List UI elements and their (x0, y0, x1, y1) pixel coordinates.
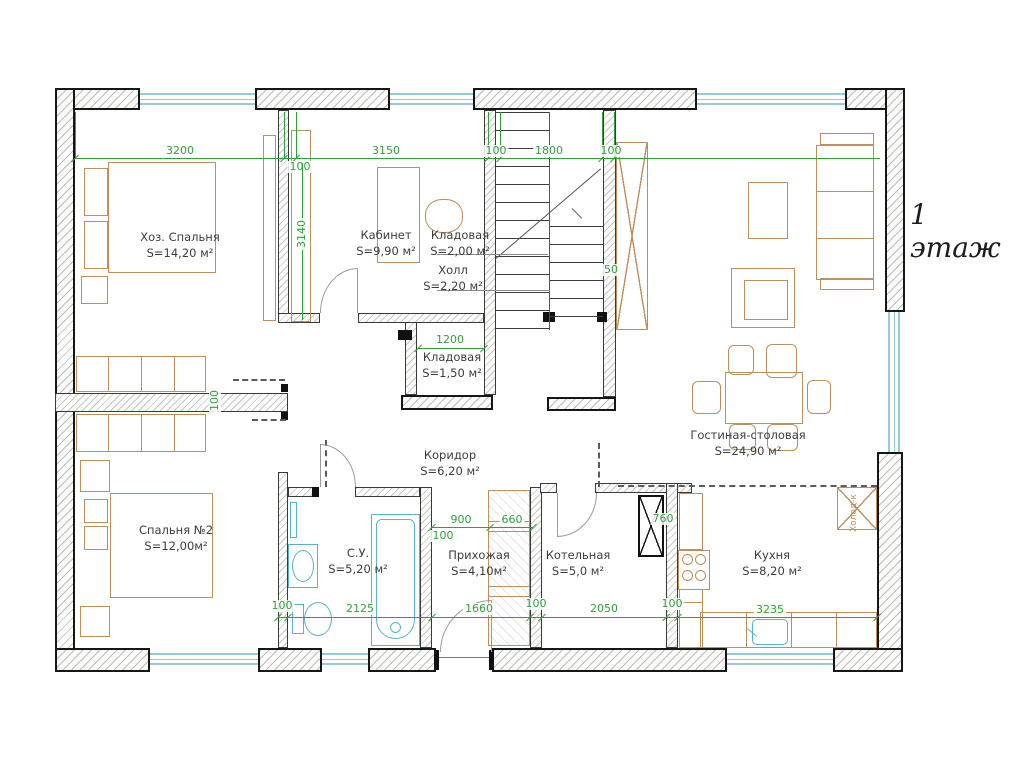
dim-label: 3235 (754, 604, 786, 616)
dim-label: 100 (524, 598, 549, 610)
nightstand (81, 276, 108, 304)
wall-bathroom-top-b (355, 487, 420, 497)
door-jamb (398, 330, 412, 340)
dining-table (725, 372, 803, 424)
outer-wall-top-3 (473, 88, 697, 110)
entry-door-jamb (434, 650, 439, 670)
dim-label: 3200 (164, 145, 196, 157)
dim-label: 100 (288, 161, 313, 173)
window-top-3 (697, 93, 845, 105)
room-name: Котельная (534, 548, 622, 564)
window-right (888, 312, 900, 452)
room-area: S=1,50 м² (412, 366, 492, 382)
room-label-hall: Холл S=2,20 м² (418, 263, 488, 294)
room-label-master-bedroom: Хоз. Спальня S=14,20 м² (115, 230, 245, 261)
outer-wall-bottom-3 (368, 648, 436, 672)
room-name: Кладовая (418, 228, 502, 244)
pillow (84, 526, 108, 550)
room-name: Кухня (722, 548, 822, 564)
outer-wall-top-2 (255, 88, 390, 110)
door-leaf-office (357, 268, 358, 313)
entry-door-jamb (489, 650, 494, 670)
dim-label: 100 (484, 145, 509, 157)
door-arc-office (320, 268, 358, 313)
room-label-bathroom: С.У. S=5,20 м² (326, 546, 390, 577)
room-name: Гостиная-столовая (668, 428, 828, 444)
room-area: S=5,0 м² (534, 564, 622, 580)
dining-chair (728, 345, 754, 375)
room-name: Холл (418, 263, 488, 279)
window-bottom-bathroom (322, 653, 368, 665)
wall-bathroom-left (278, 472, 288, 648)
pillow (84, 499, 108, 523)
room-label-bedroom2: Спальня №2 S=12,00м² (115, 523, 237, 554)
dresser-bedroom2 (76, 414, 206, 452)
dining-chair (766, 344, 797, 378)
nightstand (80, 606, 110, 637)
sliding-door-dashed (252, 419, 286, 421)
outer-wall-bottom-1 (55, 648, 150, 672)
dim-line-top (75, 158, 880, 159)
outer-wall-bottom-2 (258, 648, 322, 672)
sink-bowl (292, 550, 314, 582)
door-leaf-bathroom (320, 444, 321, 487)
wall-office-south-b (358, 313, 484, 323)
room-name: Прихожая (438, 548, 520, 564)
dim-label: 100 (660, 598, 685, 610)
armchair-seat (744, 280, 788, 320)
nightstand (80, 460, 110, 492)
wall-boiler-kitchen (666, 483, 678, 648)
dining-chair (692, 381, 721, 414)
outer-wall-right-upper (885, 88, 905, 312)
room-name: Хоз. Спальня (115, 230, 245, 246)
pillow (84, 168, 108, 216)
floor-title: 1 этаж (910, 198, 1024, 264)
room-label-living: Гостиная-столовая S=24,90 м² (668, 428, 828, 459)
room-name: Спальня №2 (115, 523, 237, 539)
outer-wall-right-lower (877, 452, 903, 672)
sofa-pad (820, 278, 874, 290)
window-bottom-bedroom2 (150, 653, 258, 665)
sofa (816, 145, 874, 280)
room-name: С.У. (326, 546, 390, 562)
window-bottom-kitchen (727, 653, 833, 665)
pillow (84, 221, 108, 269)
dim-ext (284, 112, 285, 158)
vent-shaft (638, 495, 664, 557)
wall-pantry-bottom (401, 395, 493, 410)
room-area: S=12,00м² (115, 539, 237, 555)
bathtub-inner (376, 519, 415, 639)
stairs-flight-down (549, 226, 603, 330)
stove-burner (682, 554, 693, 565)
opening-dashed (598, 443, 600, 487)
bathtub-drain (390, 622, 401, 633)
stove-burner (695, 570, 706, 581)
room-area: S=6,20 м² (405, 464, 495, 480)
sofa-pad (820, 133, 874, 145)
dim-line-hall (432, 527, 533, 528)
dim-label: 50 (602, 264, 620, 276)
dim-label: 2125 (344, 603, 376, 615)
sliding-door-dashed (233, 379, 285, 381)
dim-label: 760 (651, 513, 676, 525)
room-label-pantry2: Кладовая S=2,00 м² (418, 228, 502, 259)
wall-boiler-top-a (540, 483, 557, 493)
dim-ext (75, 112, 76, 158)
door-arc-bathroom (320, 444, 356, 487)
dim-label: 1660 (463, 603, 495, 615)
dim-line-bottom (278, 617, 877, 618)
room-label-kitchen: Кухня S=8,20 м² (722, 548, 822, 579)
room-area: S=5,20 м² (326, 562, 390, 578)
entry-threshold (439, 657, 489, 658)
room-area: S=14,20 м² (115, 246, 245, 262)
dim-ext (296, 112, 297, 158)
dim-label: 660 (500, 514, 525, 526)
dim-label: 3140 (296, 218, 308, 250)
dim-label: 1200 (434, 334, 466, 346)
wardrobe-hall (616, 142, 648, 330)
refrigerator-label: Холод-к (849, 486, 859, 532)
dim-label: 3150 (370, 145, 402, 157)
room-area: S=4,10м² (438, 564, 520, 580)
outer-wall-left (55, 88, 75, 672)
door-leaf-boiler (557, 493, 558, 537)
stove-burner (695, 554, 706, 565)
room-label-corridor: Коридор S=6,20 м² (405, 448, 495, 479)
room-label-pantry1: Кладовая S=1,50 м² (412, 350, 492, 381)
room-area: S=2,00 м² (418, 244, 502, 260)
window-top-2 (390, 93, 473, 105)
door-jamb (312, 487, 319, 497)
wall-bathroom-right (420, 487, 432, 648)
stairs-direction-tick (572, 208, 583, 219)
wall-hall-stub (547, 397, 616, 411)
stove-burner (682, 570, 693, 581)
outer-wall-bottom-4 (492, 648, 727, 672)
room-name: Коридор (405, 448, 495, 464)
kitchen-sink (752, 619, 788, 645)
coffee-table (748, 182, 788, 239)
room-area: S=2,20 м² (418, 279, 488, 295)
dim-label: 100 (599, 145, 624, 157)
closet-strip (263, 135, 276, 321)
dim-label: 1800 (533, 145, 565, 157)
door-jamb (281, 384, 288, 392)
dining-chair (807, 380, 831, 414)
toilet-bowl (304, 602, 332, 636)
room-area: S=24,90 м² (668, 444, 828, 460)
room-name: Кладовая (412, 350, 492, 366)
floor-plan: Холод-к 3200 100 3150 100 1800 100 3140 … (0, 0, 1024, 768)
dresser-master (76, 356, 206, 392)
door-arc-boiler (557, 493, 597, 537)
outer-wall-bottom-5 (833, 648, 903, 672)
dim-label: 900 (449, 514, 474, 526)
wall-between-bedrooms (55, 393, 288, 412)
room-area: S=8,20 м² (722, 564, 822, 580)
dim-label: 100 (209, 388, 221, 413)
room-label-entry: Прихожая S=4,10м² (438, 548, 520, 579)
dim-label: 2050 (588, 603, 620, 615)
dim-label: 100 (431, 530, 456, 542)
dim-label: 100 (270, 600, 295, 612)
room-label-boiler: Котельная S=5,0 м² (534, 548, 622, 579)
window-top-1 (140, 93, 255, 105)
dim-line-1200 (418, 348, 484, 349)
towel-rail (290, 502, 297, 538)
